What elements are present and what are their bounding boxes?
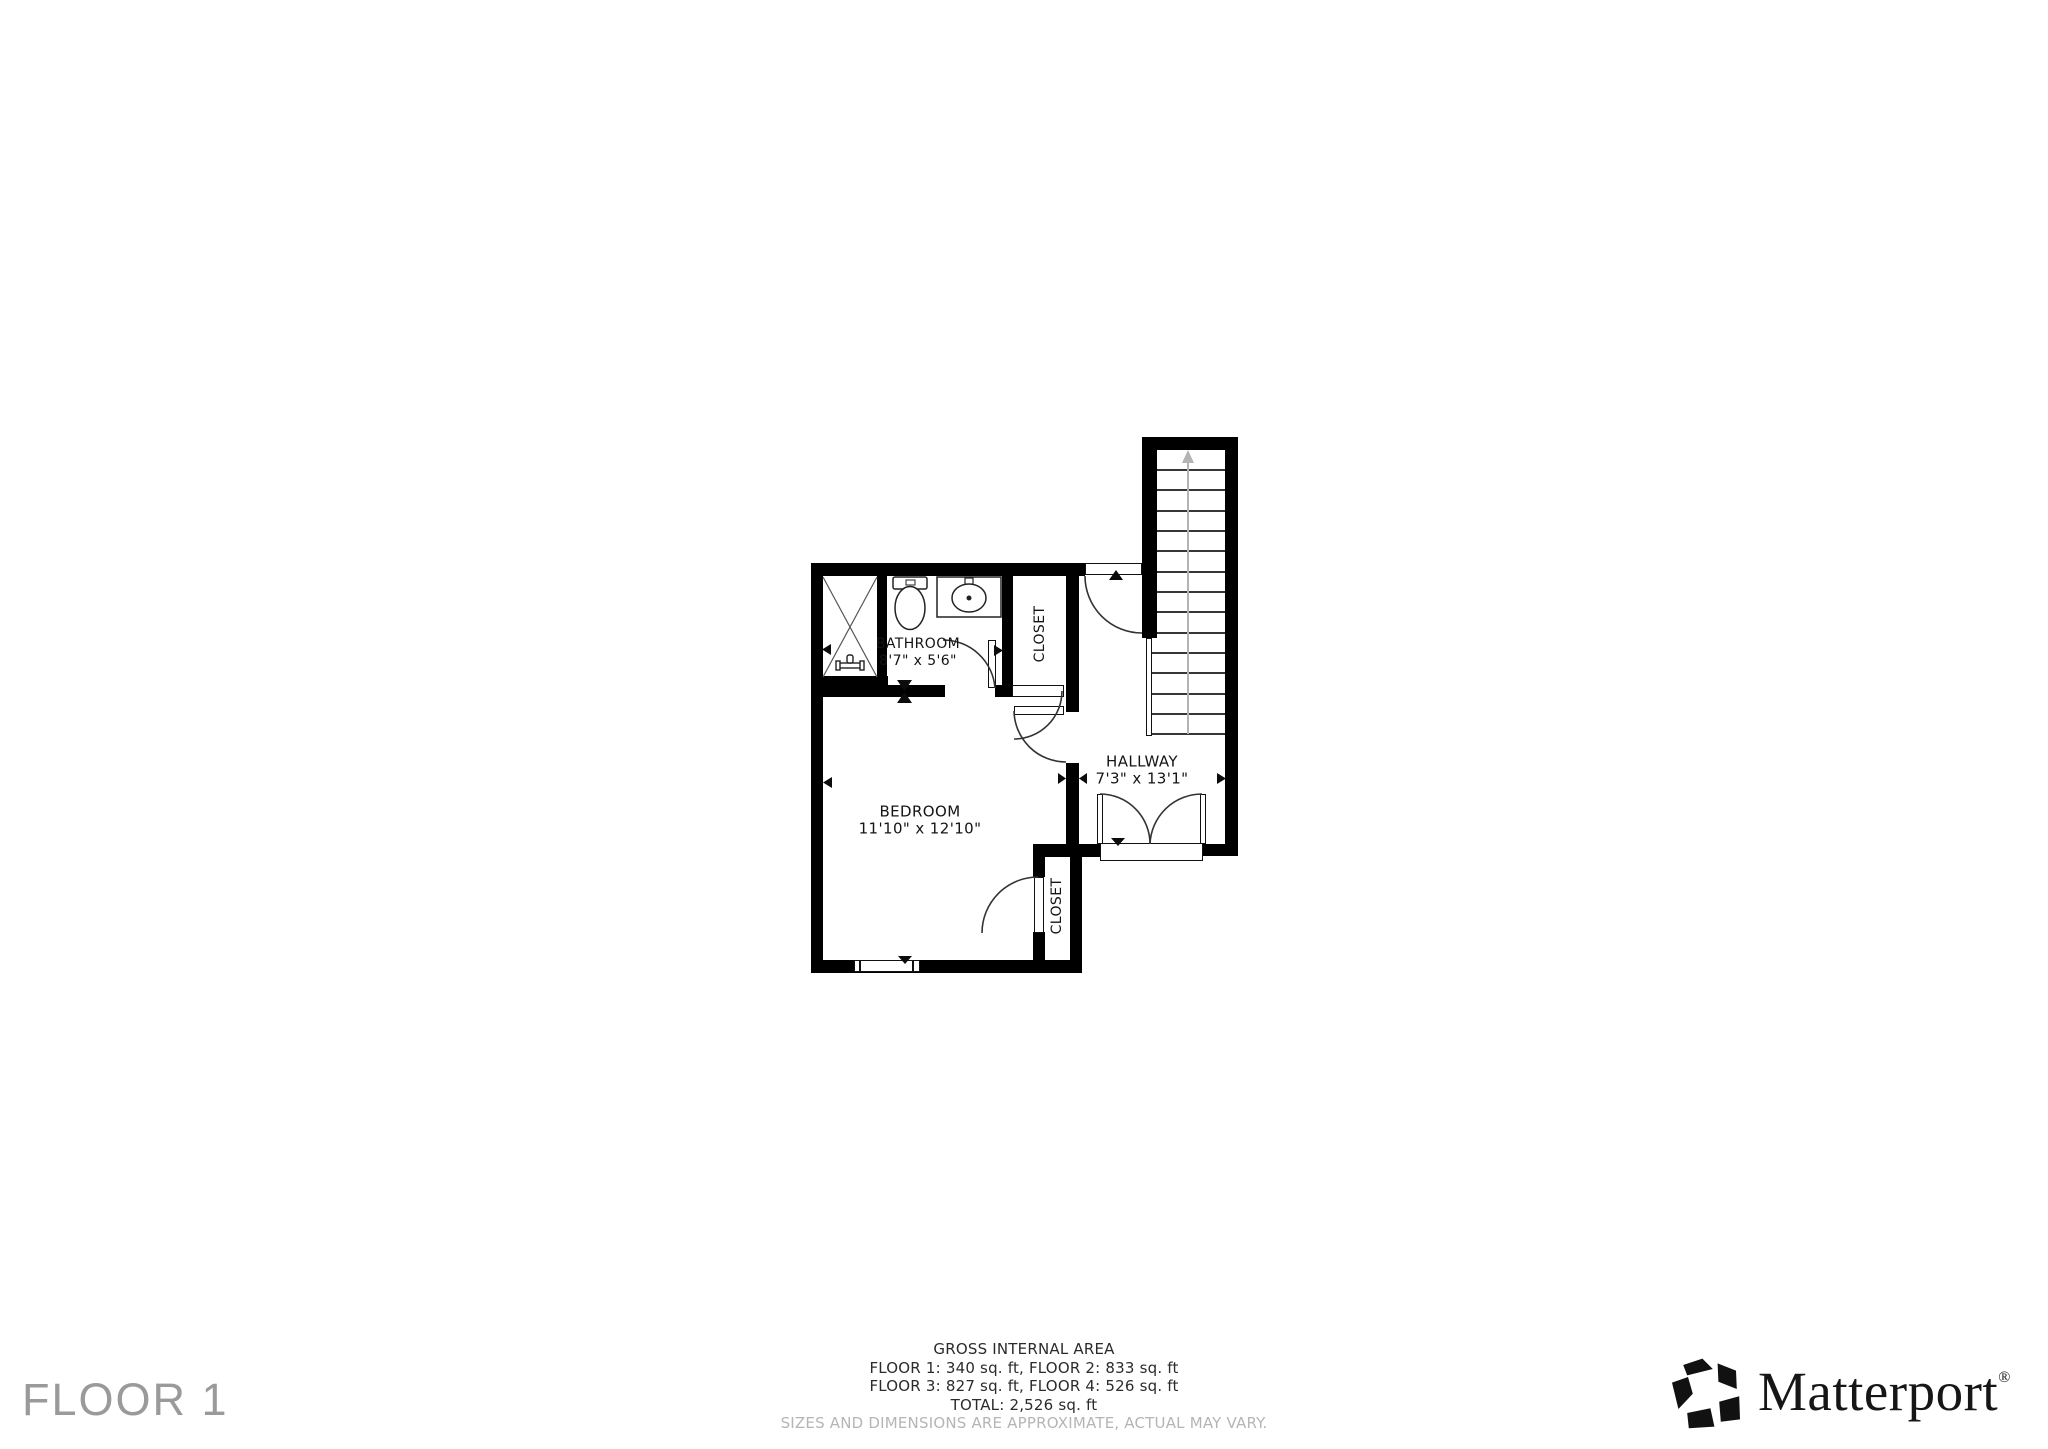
- arrow-right-icon: [994, 645, 1003, 656]
- bowtie-marker-icon: [1058, 773, 1066, 784]
- double-door-arc-left: [1100, 794, 1150, 844]
- floor-number-title: FLOOR 1: [22, 1374, 229, 1426]
- bowtie-marker-icon: [897, 692, 912, 703]
- hallway-dims: 7'3" x 13'1": [1096, 769, 1189, 789]
- registered-mark: ®: [1998, 1369, 2011, 1386]
- bedroom-dims: 11'10" x 12'10": [859, 819, 982, 839]
- floor-plan-page: BATHROOM 8'7" x 5'6" CLOSET BEDROOM 11'1…: [0, 0, 2048, 1449]
- closet-top-door-arc: [1014, 691, 1062, 739]
- arrow-left-icon: [822, 644, 831, 655]
- hallway-top-door-arc: [1085, 576, 1142, 633]
- arrow-left-icon: [823, 777, 832, 788]
- toilet-icon: [893, 577, 927, 630]
- arrow-down-icon: [898, 956, 912, 964]
- bowtie-marker-icon: [897, 680, 912, 691]
- matterport-logo: Matterport®: [1664, 1352, 2011, 1430]
- staircase: [1151, 450, 1225, 734]
- double-door-arc-right: [1150, 794, 1202, 844]
- arrow-right-icon: [1217, 773, 1226, 784]
- sink-icon: [937, 577, 1001, 617]
- plan-symbols-overlay: [0, 0, 2048, 1449]
- closet-bottom-door-arc: [982, 877, 1038, 933]
- closet-bottom-label: CLOSET: [1049, 878, 1065, 935]
- shower-stall-icon: [823, 577, 877, 677]
- shower-valve-icon: [836, 655, 864, 670]
- arrow-up-icon: [1109, 570, 1123, 580]
- matterport-mark-icon: [1664, 1352, 1744, 1430]
- stair-up-arrow-icon: [1182, 450, 1194, 463]
- bathroom-dims: 8'7" x 5'6": [879, 652, 957, 670]
- bowtie-marker-icon: [1079, 773, 1087, 784]
- bedroom-door-arc: [1014, 711, 1066, 762]
- closet-top-label: CLOSET: [1032, 606, 1048, 663]
- bathroom-label: BATHROOM: [876, 635, 960, 653]
- matterport-wordmark: Matterport®: [1758, 1360, 2011, 1423]
- arrow-down-icon: [1111, 838, 1125, 846]
